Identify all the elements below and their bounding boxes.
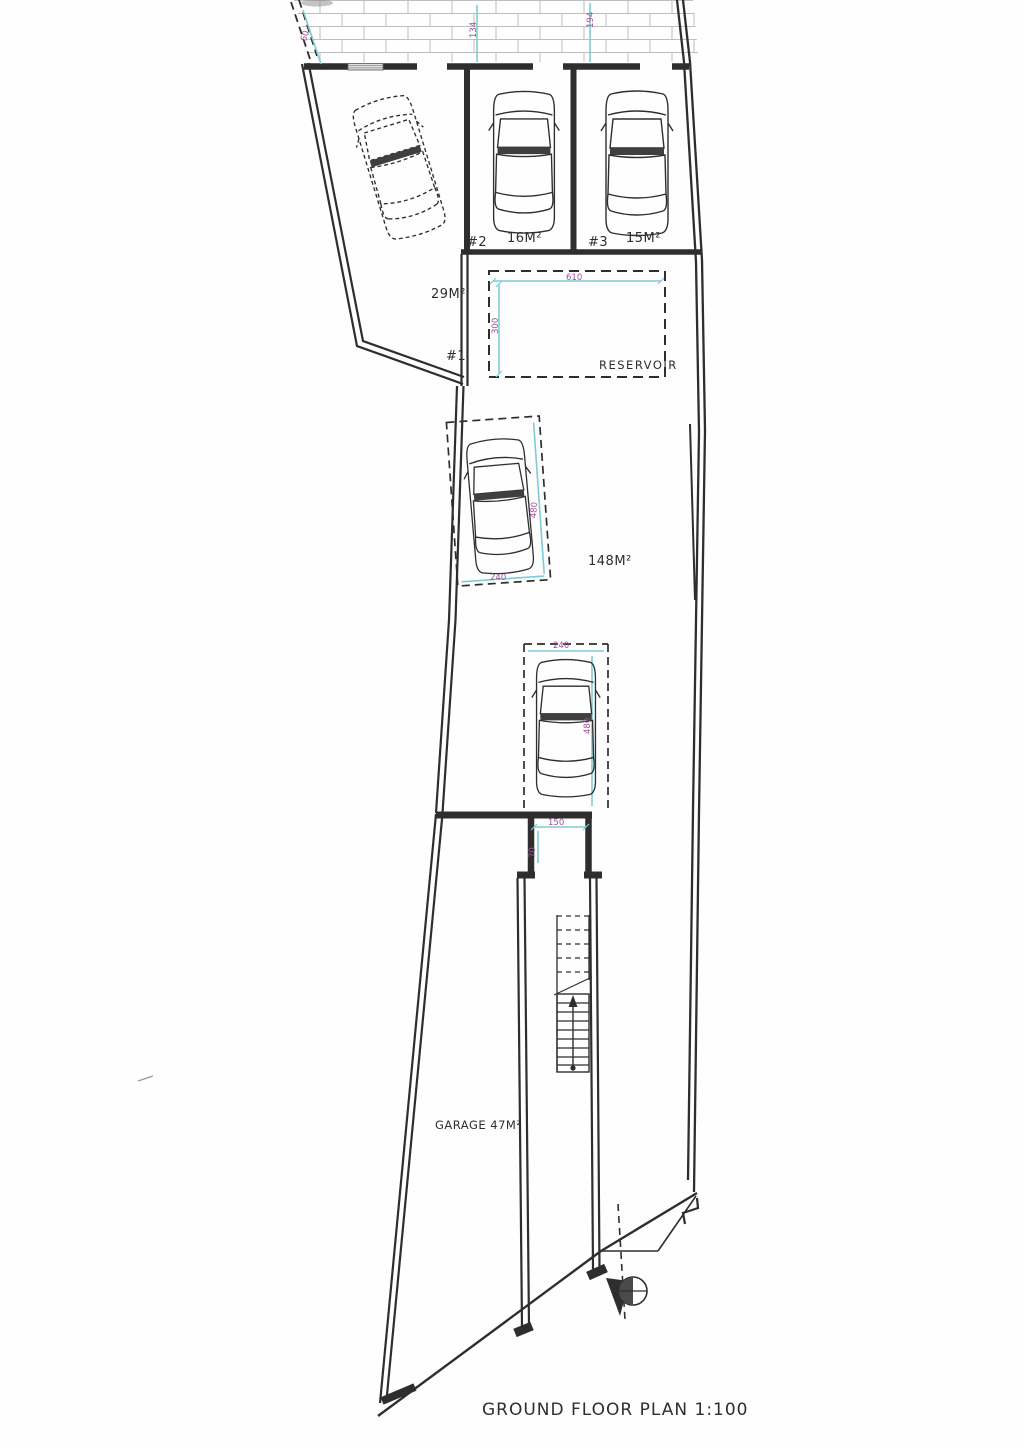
dim-street-mid: 134 bbox=[470, 22, 479, 38]
wall-end-cap bbox=[515, 1326, 532, 1333]
left-boundary-wall bbox=[302, 63, 464, 1403]
car-bay-2 bbox=[489, 91, 560, 233]
dim-upper-space-width: 240 bbox=[490, 574, 506, 583]
car-hall-upper bbox=[461, 436, 539, 576]
dim-lobby-width: 150 bbox=[548, 819, 564, 828]
wall-lining bbox=[690, 424, 695, 600]
label-garage: GARAGE 47M² bbox=[435, 1120, 521, 1132]
door-threshold bbox=[348, 64, 383, 71]
dim-street-right: 194 bbox=[587, 12, 596, 28]
gully-symbol bbox=[606, 1277, 647, 1316]
floor-plan-sheet: #1 29M² #2 16M² #3 15M² RESERVOIR 148M² … bbox=[0, 0, 1024, 1448]
car-bay-3 bbox=[601, 91, 673, 236]
stair-arrow-up bbox=[569, 995, 578, 1007]
dim-upper-space-length: 480 bbox=[530, 502, 540, 519]
label-bay2-area: 16M² bbox=[507, 232, 542, 245]
label-bay3-number: #3 bbox=[588, 236, 608, 249]
car-bay-1 bbox=[345, 90, 453, 244]
dim-reservoir-depth: 300 bbox=[492, 318, 501, 334]
label-bay1-number: #1 bbox=[446, 350, 466, 363]
staircase bbox=[554, 915, 592, 1072]
front-facade-wall bbox=[304, 64, 689, 71]
label-reservoir: RESERVOIR bbox=[599, 360, 678, 372]
dim-lobby-depth: 70 bbox=[529, 847, 538, 858]
entrance-ramp bbox=[378, 1193, 697, 1416]
plan-linework bbox=[0, 0, 1024, 1448]
scan-mark bbox=[138, 1076, 153, 1081]
dim-lower-space-length: 480 bbox=[584, 718, 593, 734]
label-bay3-area: 15M² bbox=[626, 232, 661, 245]
label-hall-area: 148M² bbox=[588, 555, 632, 568]
label-bay1-area: 29M² bbox=[431, 288, 466, 301]
stair-break-line bbox=[554, 977, 592, 995]
plan-title: GROUND FLOOR PLAN 1:100 bbox=[482, 1402, 749, 1419]
dim-reservoir-width: 610 bbox=[566, 274, 582, 283]
right-boundary-wall bbox=[677, 0, 705, 1224]
wall-end-cap bbox=[588, 1268, 606, 1276]
label-bay2-number: #2 bbox=[467, 236, 487, 249]
dim-lower-space-width: 240 bbox=[553, 642, 569, 651]
street-pavement-hatch bbox=[294, 0, 699, 62]
